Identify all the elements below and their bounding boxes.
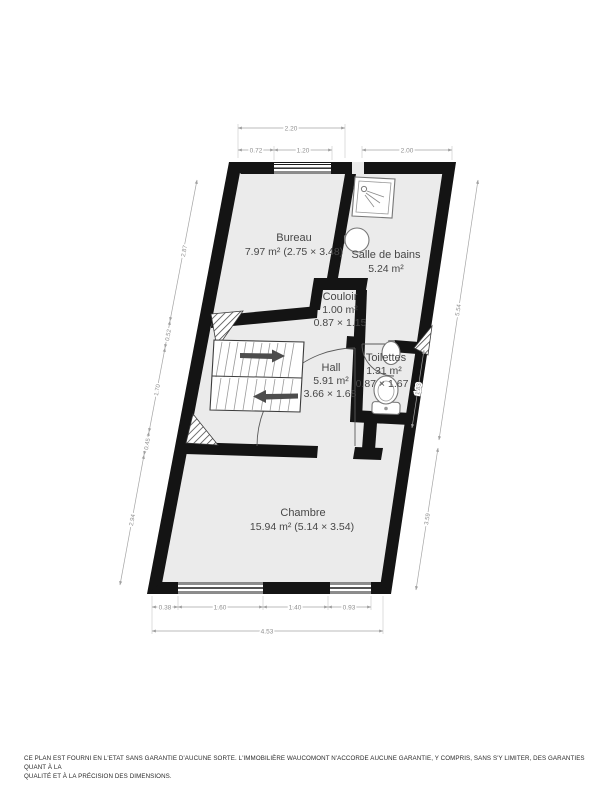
room-area-chambre: 15.94 m² (5.14 × 3.54) [250,521,354,533]
dimensions-bottom: 0.38 1.60 1.40 0.93 4.53 [152,605,383,636]
window-bureau-top [274,163,331,174]
floor-plan-svg: Bureau 7.97 m² (2.75 × 3.48) Salle de ba… [0,0,603,800]
disclaimer: CE PLAN EST FOURNI EN L'ETAT SANS GARANT… [24,754,586,781]
dim-left-4: 2.94 [129,513,137,526]
window-chambre-left [178,583,263,594]
room-area-toilettes: 1.31 m² [366,365,402,377]
wall-top-bath [364,162,456,174]
room-name-bureau: Bureau [276,232,311,244]
floor-plan-page: Bureau 7.97 m² (2.75 × 3.48) Salle de ba… [0,0,603,800]
room-area-couloir: 1.00 m² [322,304,358,316]
dim-top-wall: 0.72 [250,148,263,155]
dim-right-2: 3.59 [424,512,432,525]
dim-left-2: 1.70 [154,383,162,396]
dim-top-window: 1.20 [297,148,310,155]
wall-couloir-top [312,278,368,290]
room-name-toilettes: Toilettes [366,352,407,364]
wall-hall-chambre-right [353,447,383,460]
dim-bottom-2: 1.40 [289,605,302,612]
room-name-hall: Hall [322,362,341,374]
disclaimer-line-2: QUALITÉ ET À LA PRÉCISION DES DIMENSIONS… [24,772,586,781]
room-size-hall: 3.66 × 1.68 [304,388,357,400]
shower-icon [352,177,395,218]
dim-bottom-1: 1.60 [214,605,227,612]
room-name-chambre: Chambre [280,507,325,519]
dim-bottom-0: 0.38 [159,605,172,612]
wall-stub-toilettes [362,422,377,450]
stairs [210,340,304,412]
dim-left-3: 0.45 [144,437,152,450]
room-area-bureau: 7.97 m² (2.75 × 3.48) [245,246,343,258]
dim-bottom-3: 0.93 [343,605,356,612]
dim-right-0: 5.54 [455,303,463,316]
room-size-toilettes: 0.87 × 1.67 [356,378,409,390]
disclaimer-line-1: CE PLAN EST FOURNI EN L'ETAT SANS GARANT… [24,754,586,772]
room-size-couloir: 0.87 × 1.15 [314,317,367,329]
dim-left-1: 0.52 [165,328,173,341]
room-area-salle-de-bains: 5.24 m² [368,263,404,275]
dim-bottom-total: 4.53 [261,629,274,636]
dim-top-total: 2.20 [285,126,298,133]
dim-left-0: 2.87 [181,244,189,257]
room-name-couloir: Couloir [323,291,358,303]
dim-right-1: 1.83 [415,382,423,395]
room-area-hall: 5.91 m² [313,375,349,387]
room-name-salle-de-bains: Salle de bains [351,249,421,261]
window-chambre-right [330,583,371,594]
dim-top-bath: 2.00 [401,148,414,155]
